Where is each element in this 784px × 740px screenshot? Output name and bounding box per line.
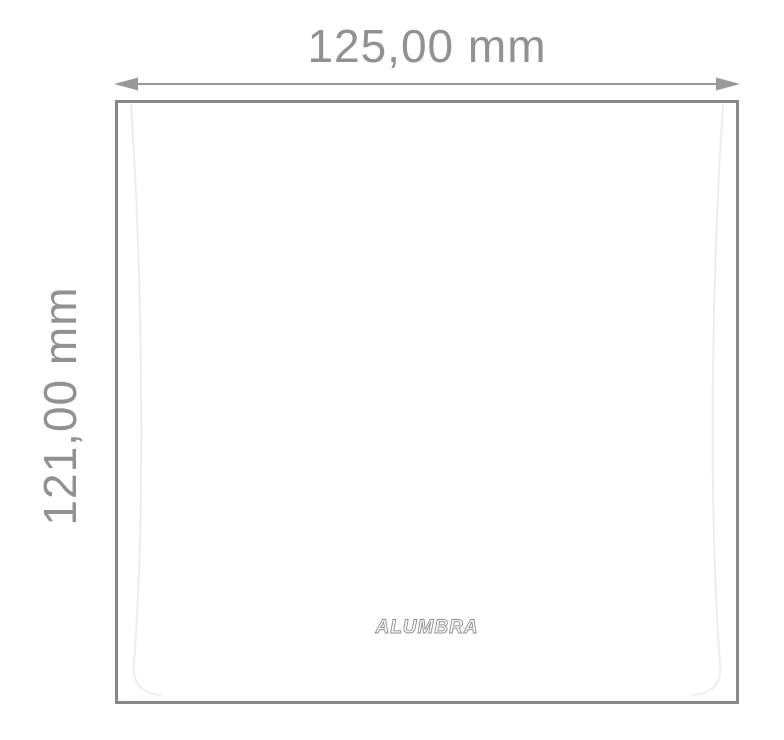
arrow-right-head-icon — [716, 78, 740, 91]
face-curve-left — [131, 104, 162, 695]
product-dimension-diagram: 125,00 mm 121,00 mm ALUMBRA — [0, 0, 784, 740]
brand-logo: ALUMBRA — [374, 617, 478, 638]
width-dimension-label: 125,00 mm — [115, 20, 739, 72]
wall-plate: ALUMBRA — [115, 100, 739, 704]
width-dimension-arrow — [112, 73, 742, 95]
face-curve-right — [692, 104, 723, 695]
arrow-left-head-icon — [114, 78, 138, 91]
height-dimension-label: 121,00 mm — [32, 94, 88, 718]
plate-face: ALUMBRA — [118, 103, 736, 701]
